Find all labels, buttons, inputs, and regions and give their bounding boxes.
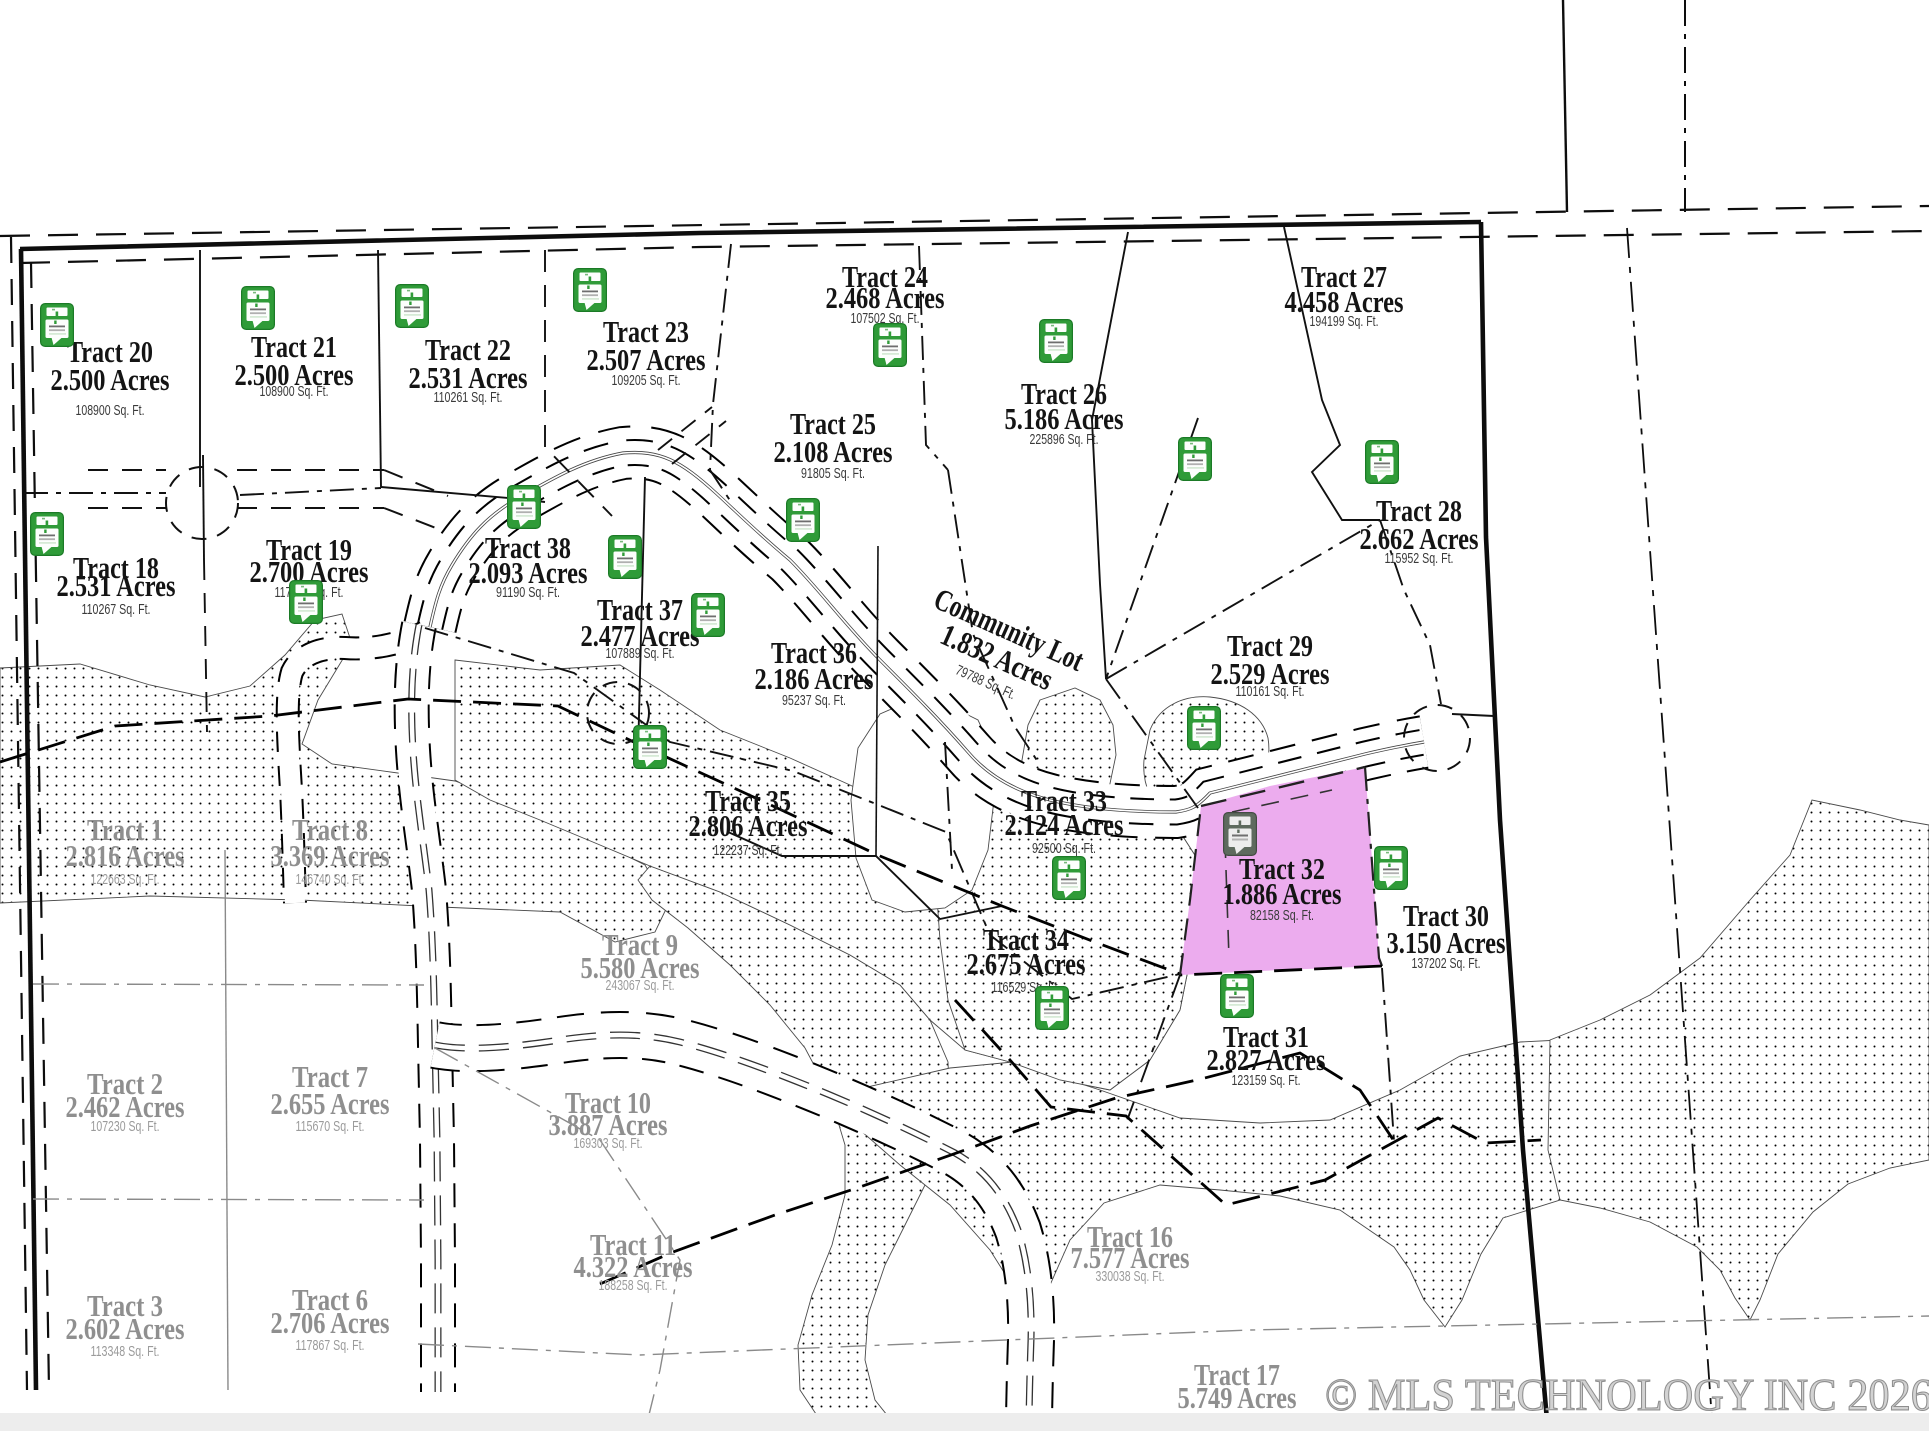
- svg-text:243067 Sq. Ft.: 243067 Sq. Ft.: [606, 978, 675, 994]
- svg-text:92500 Sq. Ft.: 92500 Sq. Ft.: [1032, 841, 1096, 857]
- svg-text:3.150 Acres: 3.150 Acres: [1387, 925, 1506, 960]
- svg-text:113348 Sq. Ft.: 113348 Sq. Ft.: [91, 1344, 160, 1360]
- svg-text:2.806 Acres: 2.806 Acres: [689, 808, 808, 843]
- svg-text:137202 Sq. Ft.: 137202 Sq. Ft.: [1412, 956, 1481, 972]
- svg-text:110161 Sq. Ft.: 110161 Sq. Ft.: [1236, 684, 1305, 700]
- svg-text:2.507 Acres: 2.507 Acres: [587, 342, 706, 377]
- svg-text:188258 Sq. Ft.: 188258 Sq. Ft.: [599, 1278, 668, 1294]
- svg-text:2.706 Acres: 2.706 Acres: [271, 1305, 390, 1340]
- svg-text:© MLS TECHNOLOGY INC 2026: © MLS TECHNOLOGY INC 2026: [1325, 1370, 1929, 1420]
- svg-text:108900 Sq. Ft.: 108900 Sq. Ft.: [76, 403, 145, 419]
- svg-text:2.675 Acres: 2.675 Acres: [967, 946, 1086, 981]
- svg-text:115670 Sq. Ft.: 115670 Sq. Ft.: [296, 1119, 365, 1135]
- svg-text:95237 Sq. Ft.: 95237 Sq. Ft.: [782, 693, 846, 709]
- svg-text:108900 Sq. Ft.: 108900 Sq. Ft.: [260, 384, 329, 400]
- svg-text:91190 Sq. Ft.: 91190 Sq. Ft.: [496, 585, 560, 601]
- svg-text:110267 Sq. Ft.: 110267 Sq. Ft.: [82, 602, 151, 618]
- svg-text:1.886 Acres: 1.886 Acres: [1223, 876, 1342, 911]
- svg-text:110261 Sq. Ft.: 110261 Sq. Ft.: [434, 390, 503, 406]
- svg-text:122237 Sq. Ft.: 122237 Sq. Ft.: [714, 843, 783, 859]
- svg-text:2.602 Acres: 2.602 Acres: [66, 1311, 185, 1346]
- svg-text:122663 Sq. Ft.: 122663 Sq. Ft.: [91, 872, 160, 888]
- svg-text:5.186 Acres: 5.186 Acres: [1005, 401, 1124, 436]
- svg-text:2.108 Acres: 2.108 Acres: [774, 434, 893, 469]
- svg-text:117867 Sq. Ft.: 117867 Sq. Ft.: [296, 1338, 365, 1354]
- svg-text:2.124 Acres: 2.124 Acres: [1005, 807, 1124, 842]
- svg-text:82158 Sq. Ft.: 82158 Sq. Ft.: [1250, 908, 1314, 924]
- svg-text:115952 Sq. Ft.: 115952 Sq. Ft.: [1385, 551, 1454, 567]
- svg-text:169303 Sq. Ft.: 169303 Sq. Ft.: [574, 1136, 643, 1152]
- svg-text:330038 Sq. Ft.: 330038 Sq. Ft.: [1096, 1269, 1165, 1285]
- svg-text:107889 Sq. Ft.: 107889 Sq. Ft.: [606, 646, 675, 662]
- svg-text:109205 Sq. Ft.: 109205 Sq. Ft.: [612, 373, 681, 389]
- svg-text:194199 Sq. Ft.: 194199 Sq. Ft.: [1310, 314, 1379, 330]
- svg-text:2.827 Acres: 2.827 Acres: [1207, 1042, 1326, 1077]
- svg-text:2.816 Acres: 2.816 Acres: [66, 838, 185, 873]
- svg-text:91805 Sq. Ft.: 91805 Sq. Ft.: [801, 466, 865, 482]
- svg-text:107230 Sq. Ft.: 107230 Sq. Ft.: [91, 1119, 160, 1135]
- svg-text:2.186 Acres: 2.186 Acres: [755, 661, 874, 696]
- svg-text:146740 Sq. Ft.: 146740 Sq. Ft.: [296, 872, 365, 888]
- svg-text:2.655 Acres: 2.655 Acres: [271, 1086, 390, 1121]
- svg-text:225896 Sq. Ft.: 225896 Sq. Ft.: [1030, 432, 1099, 448]
- svg-text:123159 Sq. Ft.: 123159 Sq. Ft.: [1232, 1073, 1301, 1089]
- svg-text:2.500 Acres: 2.500 Acres: [51, 362, 170, 397]
- svg-text:2.468 Acres: 2.468 Acres: [826, 280, 945, 315]
- svg-text:3.369 Acres: 3.369 Acres: [271, 838, 390, 873]
- svg-text:2.531 Acres: 2.531 Acres: [57, 568, 176, 603]
- svg-text:5.749 Acres: 5.749 Acres: [1178, 1380, 1297, 1415]
